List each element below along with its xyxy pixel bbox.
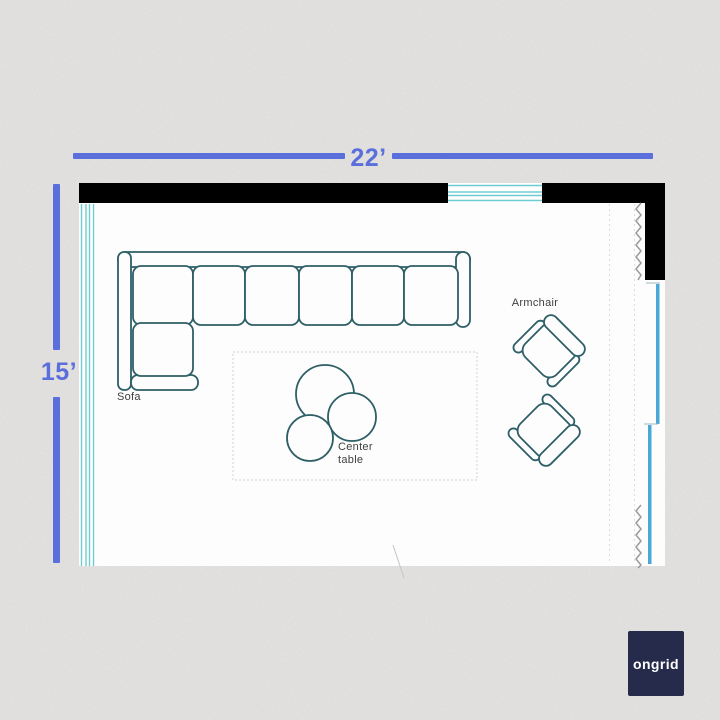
right-wall xyxy=(645,203,665,280)
sofa-cushion xyxy=(404,266,458,325)
width-dimension-label: 22’ xyxy=(340,144,397,173)
sofa-left-arm xyxy=(118,252,131,390)
armchair-label: Armchair xyxy=(499,297,571,310)
left-window xyxy=(80,203,96,566)
floor-plan-canvas: 22’ 15’ Sofa Armchair Center table ongri… xyxy=(0,0,720,720)
sliding-door-panel-2 xyxy=(648,425,652,564)
top-window xyxy=(448,183,542,203)
height-dimension-label: 15’ xyxy=(36,358,82,387)
sofa-corner-cushion xyxy=(133,266,193,325)
center-table-small xyxy=(287,415,333,461)
sofa-back xyxy=(118,252,470,267)
sofa-cushion xyxy=(299,266,352,325)
sofa-chaise-cushion xyxy=(133,323,193,376)
floor-plan-drawing xyxy=(0,0,720,720)
sofa-cushion xyxy=(245,266,299,325)
sofa-label: Sofa xyxy=(117,391,141,404)
ongrid-wordmark: ongrid xyxy=(633,656,679,672)
center-table-label-line2: table xyxy=(338,454,373,467)
center-table-label: Center table xyxy=(338,441,373,467)
sofa-cushion xyxy=(352,266,404,325)
sofa-bottom-arm xyxy=(131,375,198,390)
sofa-cushion xyxy=(193,266,245,325)
center-table-label-line1: Center xyxy=(338,441,373,454)
ongrid-logo: ongrid xyxy=(628,631,684,696)
top-wall xyxy=(79,183,665,203)
sliding-door-panel-1 xyxy=(656,284,660,424)
center-table-medium xyxy=(328,393,376,441)
